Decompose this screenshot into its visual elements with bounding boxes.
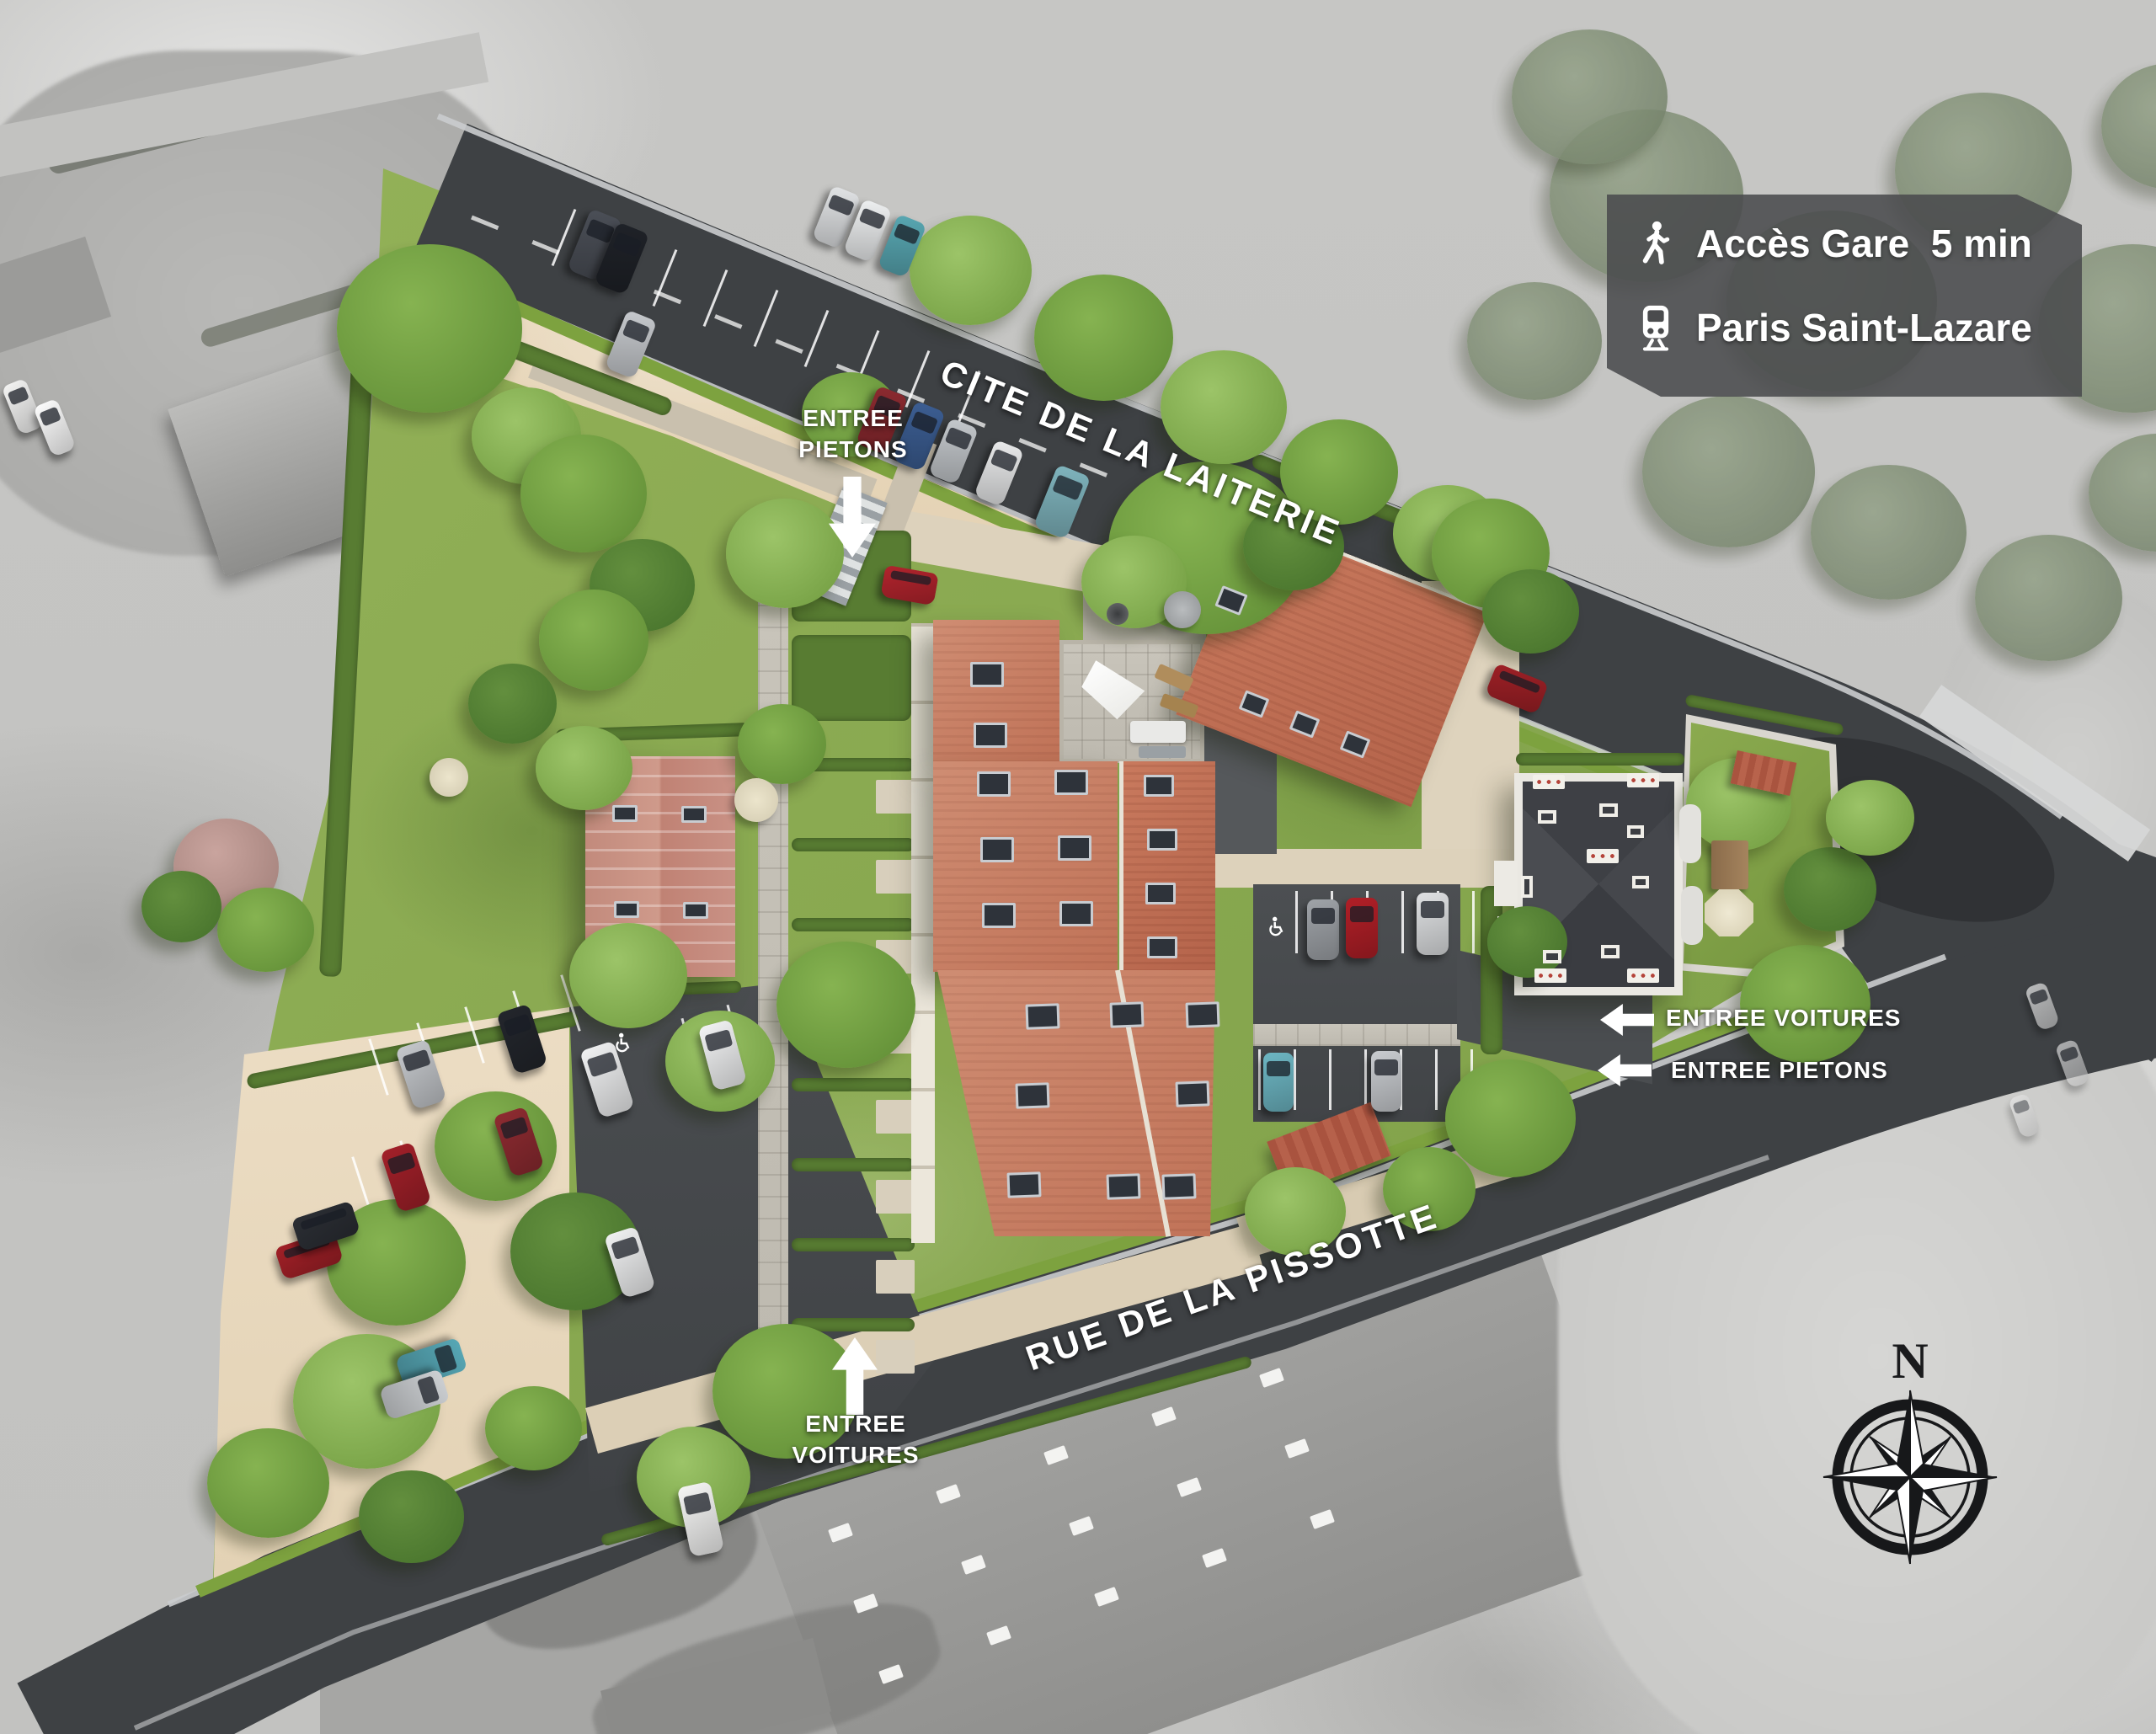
mansion-dormer <box>1538 810 1556 824</box>
tree <box>468 664 557 744</box>
tree <box>1487 906 1567 978</box>
hedge-row <box>792 838 915 851</box>
mansion-dormer <box>1521 876 1533 898</box>
mansion-dormer <box>1601 945 1620 958</box>
hedge <box>1481 886 1502 1054</box>
stall-line <box>1472 891 1475 953</box>
mansion-annex <box>1494 861 1518 906</box>
stall-line <box>1401 891 1404 953</box>
car <box>1371 1051 1401 1112</box>
entrance-label-line: ENTREE <box>805 1411 906 1437</box>
tree <box>910 216 1032 325</box>
hedge <box>792 635 911 721</box>
roof-window <box>980 837 1014 862</box>
roof-window <box>1106 1173 1140 1199</box>
site-plan-stage: CITE DE LA LAITERIE RUE DE LA PISSOTTE E… <box>0 0 2156 1734</box>
tree <box>1811 465 1967 600</box>
roof-window <box>1147 829 1177 851</box>
car <box>1307 899 1339 960</box>
info-access-gare: Accès Gare 5 min <box>1696 221 2032 266</box>
fire-pit <box>1107 603 1129 625</box>
car <box>1263 1053 1294 1112</box>
building-main-mid <box>933 761 1118 972</box>
stall-line <box>1329 1049 1331 1110</box>
patio-umbrella-gray <box>1164 591 1201 628</box>
info-paris-saint-lazare: Paris Saint-Lazare <box>1696 305 2032 350</box>
outdoor-sofa <box>1130 721 1186 743</box>
roof-window <box>1145 883 1176 904</box>
tree <box>337 244 522 413</box>
roof-window <box>683 902 708 919</box>
entrance-label-line: VOITURES <box>792 1442 919 1468</box>
garden-terrace <box>876 1180 915 1214</box>
stall-line <box>1294 1049 1296 1110</box>
walking-icon <box>1637 219 1674 268</box>
patio-umbrella-cream <box>430 758 468 797</box>
disabled-parking-icon <box>1267 916 1285 938</box>
roof-window <box>977 771 1011 797</box>
stall-line <box>1435 1049 1438 1110</box>
car <box>1417 893 1449 955</box>
garden-terrace <box>876 860 915 894</box>
courtyard-east-band <box>1179 849 1520 888</box>
garden-terrace <box>876 1340 915 1374</box>
curved-bench <box>1681 886 1703 945</box>
roof-window <box>1006 1171 1041 1198</box>
tree <box>1512 29 1668 164</box>
roof-window <box>974 723 1007 748</box>
entrance-label-top-pedestrian: ENTREE PIETONS <box>760 403 946 465</box>
hedge-row <box>792 1078 915 1091</box>
compass-rose: N <box>1817 1332 2003 1577</box>
tree <box>359 1470 464 1563</box>
hedge-row <box>792 918 915 931</box>
tree <box>1784 847 1876 931</box>
tree <box>141 871 221 942</box>
garden-terrace <box>876 1260 915 1294</box>
tree <box>1445 1059 1576 1177</box>
roof-window <box>681 806 707 823</box>
hedge-row <box>792 1238 915 1251</box>
tree <box>217 888 314 972</box>
roof-window <box>614 901 639 918</box>
picnic-table <box>1711 840 1748 889</box>
mansion-chimney <box>1627 773 1659 787</box>
tree <box>1826 780 1914 856</box>
entrance-label-bottom-cars: ENTREE VOITURES <box>763 1408 948 1470</box>
roof-window <box>1058 835 1091 861</box>
roof-window <box>1175 1080 1209 1107</box>
info-row-access: Accès Gare 5 min <box>1637 216 2032 270</box>
mansion-chimney <box>1533 775 1565 789</box>
tree <box>569 923 687 1028</box>
facade-terraces-west <box>911 623 935 1243</box>
roof-window <box>612 805 638 822</box>
tree <box>776 942 915 1068</box>
mansion-chimney <box>1627 968 1659 983</box>
tree <box>1975 535 2122 661</box>
roof-window <box>1015 1082 1049 1108</box>
curved-bench <box>1679 804 1701 863</box>
tree <box>738 704 826 784</box>
stall-line <box>1258 1049 1261 1110</box>
patio-umbrella-cream <box>734 778 778 822</box>
mansion-chimney <box>1587 849 1619 863</box>
entrance-label-right-pedestrian: ENTREE PIETONS <box>1671 1054 1888 1086</box>
roof-window <box>1054 770 1088 795</box>
mansion-chimney <box>1534 968 1566 983</box>
tree <box>520 435 647 552</box>
roof-window <box>1109 1001 1144 1027</box>
entrance-label-line: PIETONS <box>798 436 907 462</box>
tree <box>1467 282 1602 400</box>
stall-line <box>1364 1049 1367 1110</box>
hedge-row <box>792 1158 915 1171</box>
tree <box>485 1386 582 1470</box>
roof-window <box>1025 1003 1059 1029</box>
garden-terrace <box>876 1100 915 1134</box>
roof-window <box>982 903 1016 928</box>
tree <box>536 726 632 810</box>
car <box>1346 898 1378 958</box>
tree <box>207 1428 329 1538</box>
entrance-label-right-cars: ENTREE VOITURES <box>1666 1002 1901 1033</box>
hedge <box>1516 753 1684 766</box>
roof-window <box>1161 1173 1196 1199</box>
info-row-station: Paris Saint-Lazare <box>1637 301 2032 355</box>
tree <box>726 499 844 608</box>
tree <box>1642 396 1815 547</box>
mansion-dormer <box>1632 876 1649 888</box>
roof-window <box>1059 901 1093 926</box>
mansion-dormer <box>1543 950 1561 963</box>
tree <box>1482 569 1579 654</box>
walkway-east-lot <box>1253 1024 1460 1046</box>
roof-window <box>970 662 1004 687</box>
info-panel: Accès Gare 5 min Paris Saint-Lazare <box>1607 195 2082 397</box>
tree <box>435 1091 557 1201</box>
roof-window <box>1185 1001 1219 1027</box>
outdoor-table <box>1139 746 1186 758</box>
roof-window <box>1147 936 1177 958</box>
entrance-label-line: ENTREE <box>803 405 904 431</box>
mansion-dormer <box>1627 825 1644 838</box>
garden-terrace <box>876 780 915 814</box>
tree <box>1034 275 1173 401</box>
tree <box>539 590 648 691</box>
roof-window <box>1144 775 1174 797</box>
train-icon <box>1637 303 1674 352</box>
compass-star <box>1817 1381 2003 1577</box>
stall-line <box>1295 891 1298 953</box>
mansion-dormer <box>1599 803 1618 817</box>
